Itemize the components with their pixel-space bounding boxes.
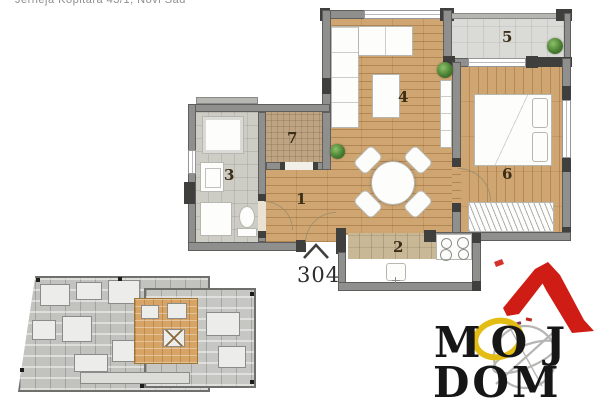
sofa: [331, 26, 359, 128]
wall: [322, 10, 331, 112]
wall: [526, 56, 538, 68]
washing-machine: [200, 202, 232, 236]
toilet-bowl: [239, 206, 255, 228]
wall: [424, 230, 436, 242]
window: [364, 10, 442, 19]
coffee-table: [372, 74, 400, 118]
wall: [258, 231, 266, 238]
wall: [452, 158, 461, 167]
room-label-3: 3: [224, 166, 234, 184]
room-label-2: 2: [393, 238, 403, 256]
wall: [258, 194, 266, 201]
hall-cabinet: [440, 80, 452, 148]
moj-dom-logo: M O J DOM: [424, 258, 600, 408]
building-overview-plan: [14, 272, 258, 398]
kitchen-sink: [386, 263, 406, 281]
column-dot: [118, 277, 122, 281]
wall: [562, 158, 571, 172]
bathroom-sink: [200, 162, 224, 192]
terrace-door: [468, 58, 526, 67]
dining-table: [371, 161, 415, 205]
wall: [196, 97, 258, 104]
kitchen-counter: [348, 233, 436, 259]
column-dot: [20, 368, 24, 372]
shower: [202, 116, 244, 154]
room-label-7: 7: [287, 129, 297, 147]
column-dot: [250, 380, 254, 384]
unit-room: [141, 305, 159, 319]
wall: [336, 228, 346, 254]
wall: [564, 13, 571, 58]
room-label-1: 1: [296, 190, 306, 208]
room-label-5: 5: [502, 28, 512, 46]
pillow: [532, 98, 548, 128]
floorplan-page: Jerneja Kopitara 43/1, Novi Sad: [0, 0, 600, 410]
wall: [188, 104, 196, 251]
wall: [450, 13, 564, 19]
unit-outline: [40, 284, 70, 306]
wall: [188, 242, 304, 251]
wall: [452, 62, 461, 167]
apartment-floorplan: 1 2 3 4 5 6 7 304: [0, 0, 600, 300]
plant-icon: [330, 144, 345, 159]
highlighted-unit: [134, 298, 198, 364]
wall: [562, 86, 571, 100]
wall: [313, 162, 318, 170]
wall: [184, 182, 195, 204]
wall: [472, 233, 481, 243]
unit-room: [163, 329, 185, 347]
plant-icon: [437, 62, 453, 78]
pillow: [532, 132, 548, 162]
unit-outline: [32, 320, 56, 340]
unit-outline: [218, 346, 246, 368]
wall: [280, 162, 285, 170]
toilet-tank: [237, 228, 257, 237]
closet-door: [285, 162, 313, 170]
room-label-4: 4: [398, 88, 408, 106]
wall: [322, 78, 331, 94]
apartment-number: 304: [297, 263, 340, 287]
column-dot: [140, 384, 144, 388]
column-dot: [250, 292, 254, 296]
plant-icon: [547, 38, 563, 54]
toilet: [236, 204, 258, 240]
wall: [188, 104, 330, 112]
corridor: [80, 372, 190, 384]
window: [562, 100, 571, 158]
unit-outline: [74, 354, 108, 372]
faucet-icon: [392, 280, 400, 281]
entrance-arrow-icon: [302, 243, 330, 260]
logo-word-dom: DOM: [433, 362, 562, 404]
unit-outline: [62, 316, 92, 342]
burner: [441, 238, 452, 249]
column-dot: [36, 278, 40, 282]
wall: [452, 203, 461, 212]
wall: [322, 112, 331, 170]
unit-room: [167, 303, 187, 319]
window: [188, 150, 196, 174]
burner: [457, 237, 469, 249]
unit-outline: [206, 312, 240, 336]
stove: [436, 234, 472, 260]
sink-basin: [205, 168, 221, 188]
unit-outline: [76, 282, 102, 300]
faucet-icon: [395, 277, 396, 285]
room-label-6: 6: [502, 165, 512, 183]
wardrobe: [468, 202, 554, 232]
